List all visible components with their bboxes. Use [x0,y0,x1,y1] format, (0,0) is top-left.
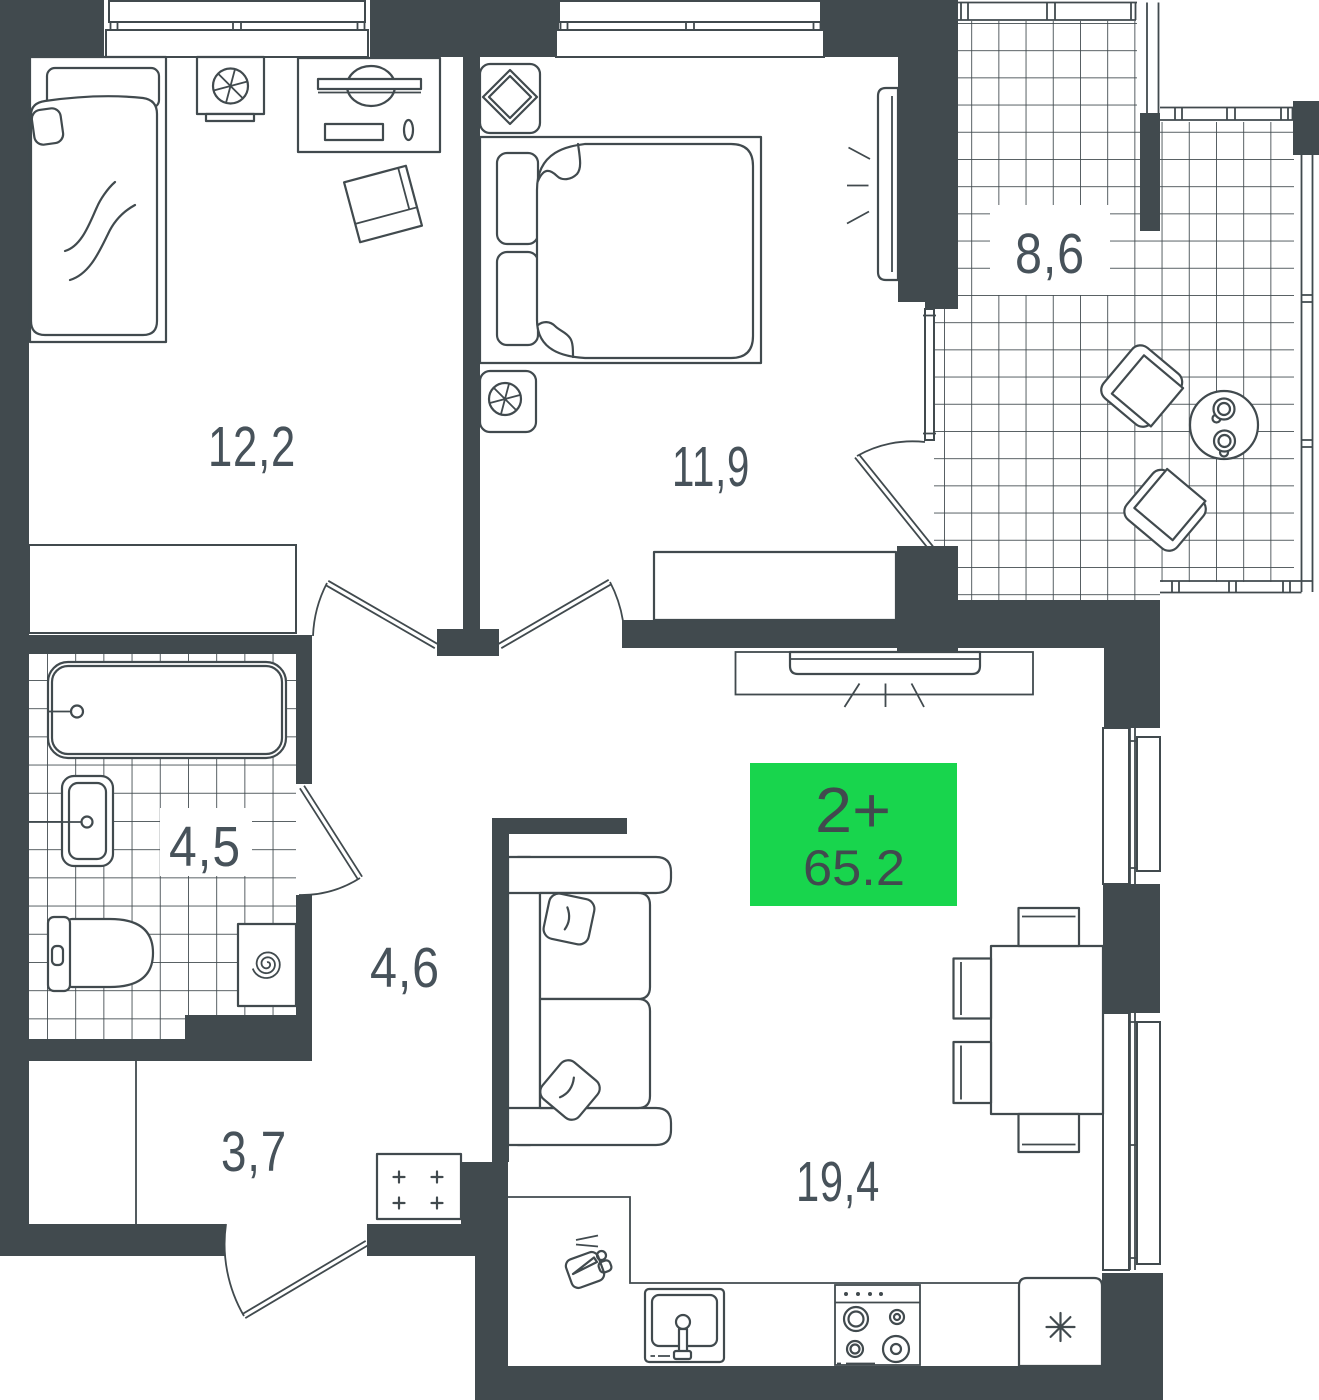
svg-text:11,9: 11,9 [672,435,750,499]
svg-text:4,6: 4,6 [370,936,440,1000]
svg-text:65.2: 65.2 [803,840,905,896]
svg-text:4,5: 4,5 [169,815,241,879]
svg-text:8,6: 8,6 [1015,222,1085,286]
svg-text:3,7: 3,7 [221,1120,287,1184]
svg-text:12,2: 12,2 [208,415,296,479]
svg-text:19,4: 19,4 [796,1150,880,1214]
svg-text:2+: 2+ [815,774,891,846]
